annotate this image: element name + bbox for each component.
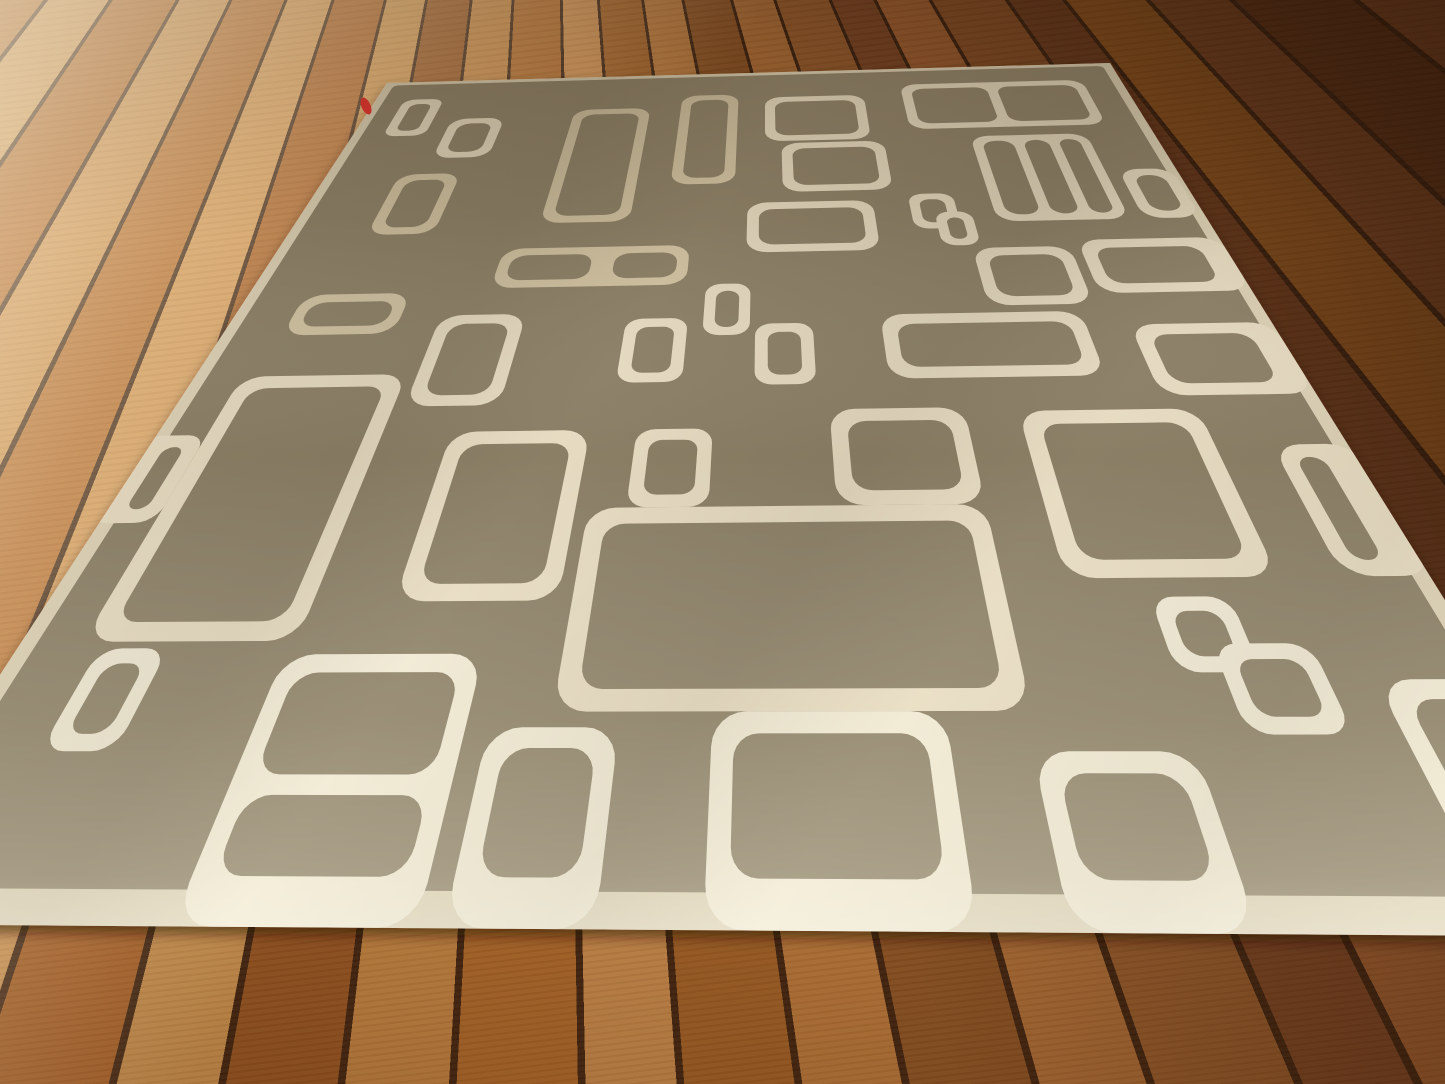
photo-scene: [0, 0, 1445, 1084]
rug-inner: [0, 63, 1445, 937]
rug-sheen: [0, 63, 1445, 937]
rug-root: [0, 63, 1445, 937]
area-rug: [0, 0, 1445, 1084]
